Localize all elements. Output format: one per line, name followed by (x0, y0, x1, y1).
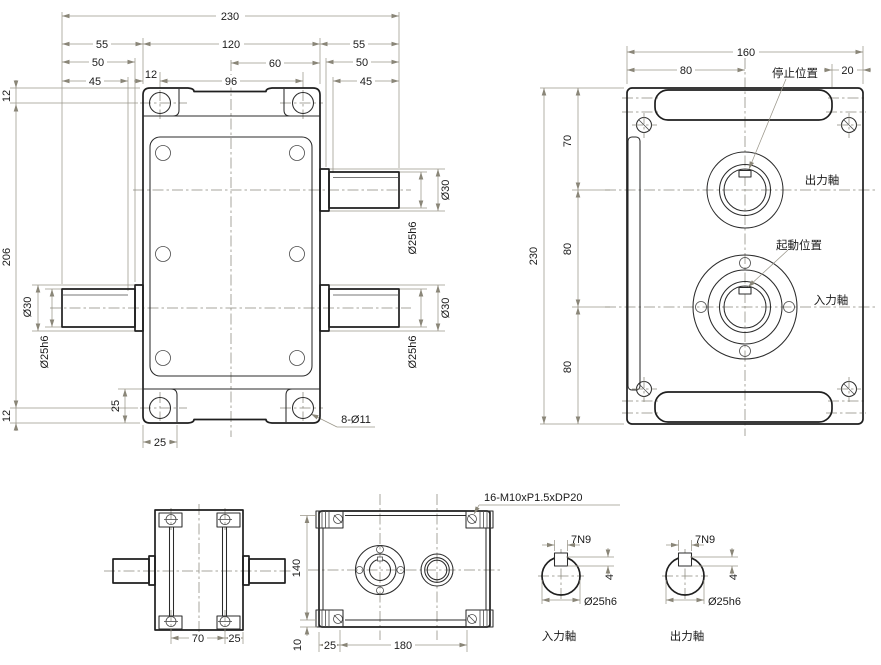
dim-hole-span-206: 206 (1, 248, 13, 266)
dim-output-key-7n9: 7N9 (695, 534, 715, 546)
dim-right-45: 45 (360, 76, 372, 88)
dim-mid-80: 80 (562, 243, 574, 255)
dim-total-width: 230 (221, 11, 239, 23)
dim-input-key-depth-4: 4 (604, 574, 616, 580)
label-input-shaft: 入力軸 (814, 293, 849, 307)
label-mount-holes-callout: 8-Ø11 (341, 414, 371, 426)
dim-width-160: 160 (737, 47, 755, 59)
dim-bottom-80: 80 (562, 361, 574, 373)
input-keyway (739, 288, 751, 295)
dim-left-50: 50 (92, 57, 104, 69)
dim-top-12: 12 (1, 90, 13, 102)
input-section-keyway (555, 553, 568, 566)
top-slot (655, 90, 832, 120)
dim-span-180: 180 (394, 640, 412, 652)
label-stop-position: 停止位置 (772, 66, 818, 80)
small-center-lines (104, 504, 293, 636)
dim-input-dia25h6: Ø25h6 (584, 596, 617, 608)
front-panel-screw-holes (156, 146, 305, 366)
technical-drawing-svg: 230 55 120 55 50 60 50 45 96 45 12 12 20… (0, 0, 881, 665)
left-slot (628, 137, 640, 390)
shaft-sections: 7N9 4 Ø25h6 入力軸 7N9 4 Ø25h6 出力軸 (538, 534, 741, 643)
dim-small-70: 70 (192, 633, 204, 645)
bottom-view: 140 10 25 180 16-M10xP1.5xDP20 (291, 492, 620, 652)
label-dia30-upper-right: Ø30 (440, 180, 452, 201)
dim-center-60: 60 (269, 58, 281, 70)
label-dia25h6-upper-right: Ø25h6 (407, 221, 419, 254)
dim-body-width-120: 120 (222, 39, 240, 51)
output-shaft-section: 7N9 4 Ø25h6 出力軸 (662, 534, 741, 643)
drawing-sheet: 230 55 120 55 50 60 50 45 96 45 12 12 20… (0, 0, 881, 665)
dim-lip-10: 10 (292, 639, 304, 651)
side-extension-lines (540, 46, 863, 424)
front-mounting-holes (150, 93, 314, 419)
dim-left-shaft-55: 55 (96, 39, 108, 51)
dim-top-70: 70 (562, 135, 574, 147)
output-keyway (739, 171, 751, 178)
dim-left-45: 45 (89, 76, 101, 88)
output-section-keyway (679, 553, 692, 566)
dim-half-80: 80 (680, 65, 692, 77)
dim-right-50: 50 (356, 57, 368, 69)
bottom-slot (655, 392, 832, 422)
bottom-body (316, 511, 493, 627)
label-dia25h6-lower-right: Ø25h6 (407, 335, 419, 368)
label-dia25h6-left: Ø25h6 (39, 335, 51, 368)
label-tapped-holes-callout: 16-M10xP1.5xDP20 (484, 492, 582, 504)
label-input-shaft-section: 入力軸 (542, 629, 577, 643)
dim-height-230: 230 (528, 247, 540, 265)
front-view: 230 55 120 55 50 60 50 45 96 45 12 12 20… (1, 10, 452, 449)
dim-ear-25-vertical: 25 (110, 400, 122, 412)
dim-output-key-depth-4: 4 (728, 574, 740, 580)
dim-depth-140: 140 (291, 559, 303, 577)
dim-hole-offset-12: 12 (145, 69, 157, 81)
dim-hole-span-96: 96 (225, 76, 237, 88)
dim-edge-20: 20 (841, 65, 853, 77)
label-output-shaft-section: 出力軸 (670, 629, 705, 643)
front-body (62, 88, 399, 423)
dim-small-25: 25 (228, 633, 240, 645)
side-label-backgrounds (677, 46, 857, 76)
bottom-input-flange (356, 546, 405, 595)
dim-input-key-7n9: 7N9 (571, 534, 591, 546)
side-view: 160 80 20 230 70 80 80 停止位置 出力軸 起動位置 入力軸 (528, 46, 875, 436)
dim-bottom-12: 12 (1, 410, 13, 422)
input-shaft-section: 7N9 4 Ø25h6 入力軸 (538, 534, 617, 643)
dim-ear-25-horizontal: 25 (154, 437, 166, 449)
label-dia30-left: Ø30 (22, 297, 34, 318)
dim-right-shaft-55: 55 (353, 39, 365, 51)
label-dia30-lower-right: Ø30 (440, 298, 452, 319)
dim-edge-25: 25 (324, 640, 336, 652)
small-side-view: 70 25 (104, 504, 293, 645)
label-start-position: 起動位置 (776, 238, 822, 252)
label-output-shaft: 出力軸 (805, 173, 840, 187)
front-center-lines (50, 60, 411, 437)
dim-output-dia25h6: Ø25h6 (708, 596, 741, 608)
side-center-lines (605, 58, 875, 436)
